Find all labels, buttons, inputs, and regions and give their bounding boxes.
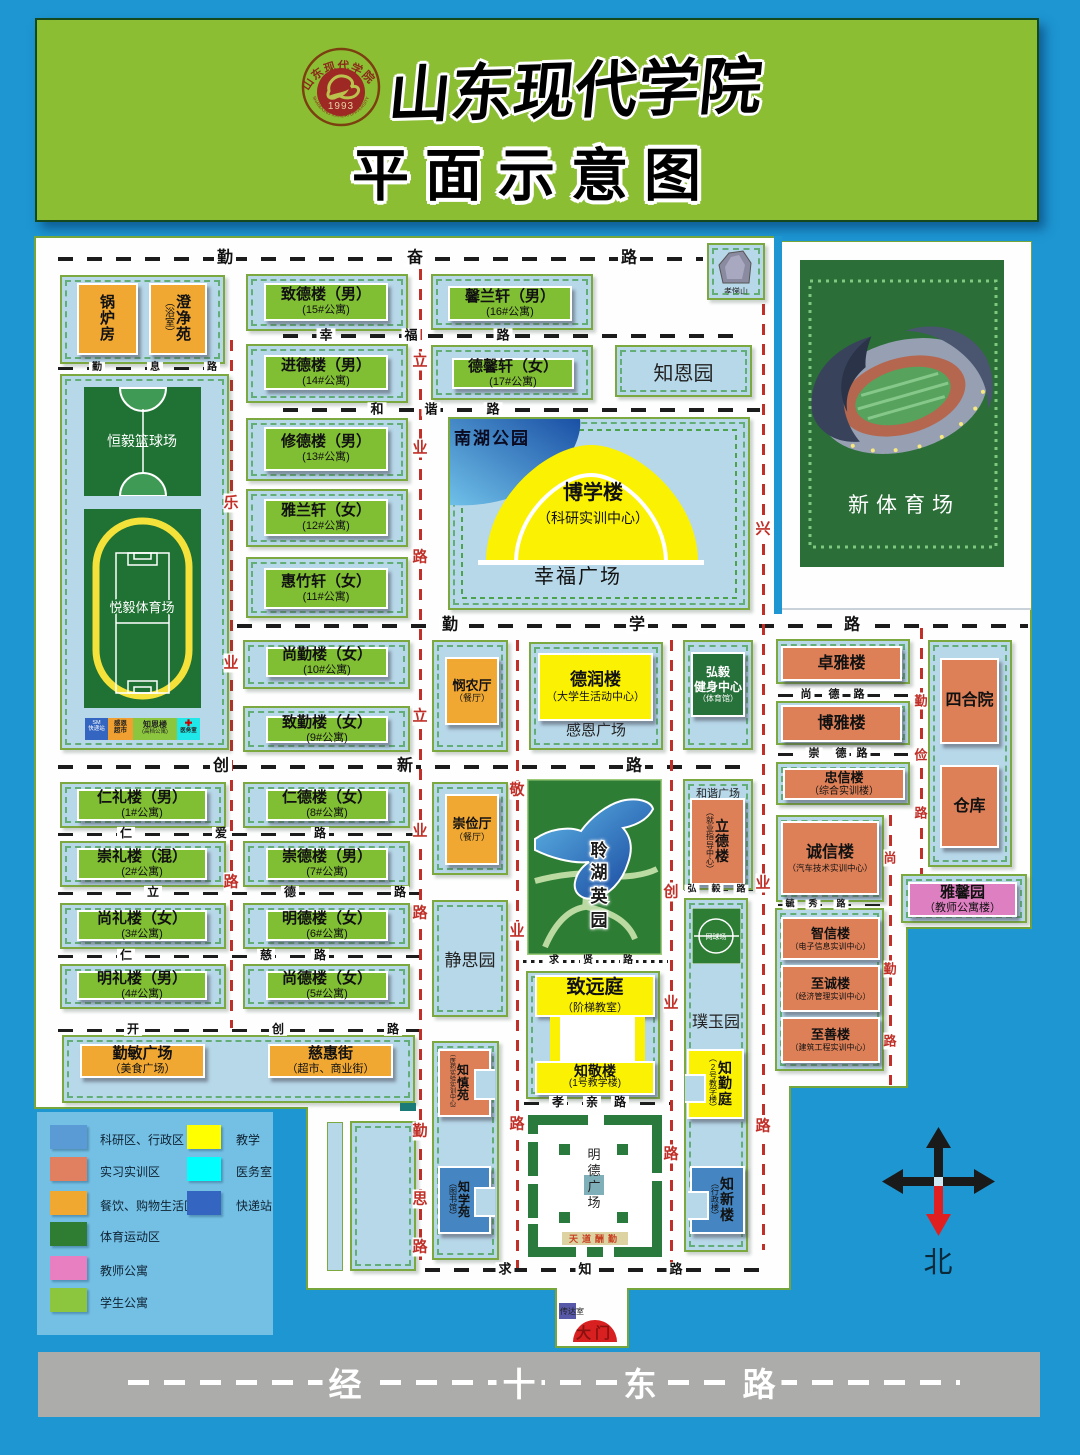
svg-text:天道酬勤: 天道酬勤 [569,1233,621,1244]
svg-text:园: 园 [591,911,608,930]
svg-text:广: 广 [587,1179,600,1194]
svg-text:（科研实训中心）: （科研实训中心） [537,510,649,526]
svg-text:网球场: 网球场 [706,932,727,941]
svg-text:幸福广场: 幸福广场 [534,565,622,588]
svg-text:博学楼: 博学楼 [563,480,623,504]
svg-text:聆: 聆 [591,840,608,860]
svg-text:北: 北 [923,1247,952,1278]
svg-text:德: 德 [587,1163,600,1178]
svg-text:场: 场 [587,1195,600,1210]
svg-text:恒毅篮球场: 恒毅篮球场 [107,433,177,449]
svg-text:英: 英 [591,886,609,906]
svg-text:悦毅体育场: 悦毅体育场 [109,600,174,615]
svg-text:湖: 湖 [591,863,608,882]
svg-text:明: 明 [587,1147,600,1162]
svg-text:新体育场: 新体育场 [848,494,960,517]
svg-text:南湖公园: 南湖公园 [454,428,530,448]
svg-text:孝悌山: 孝悌山 [724,286,748,296]
